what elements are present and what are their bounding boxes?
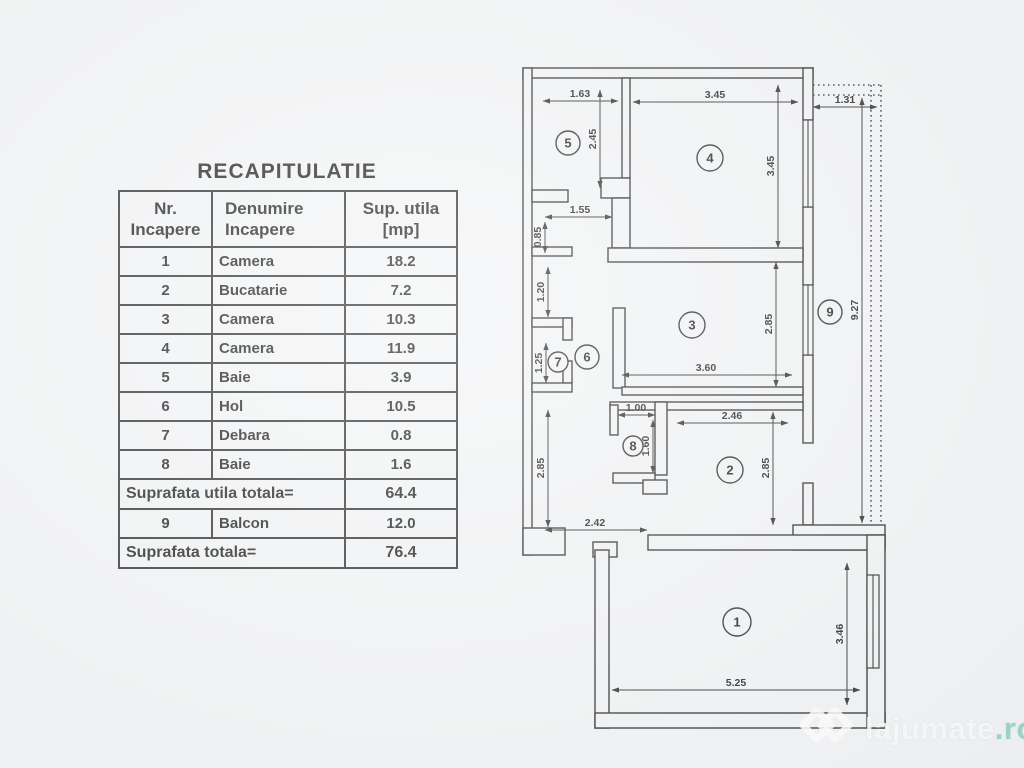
watermark-tld: .ro [995,711,1024,746]
wall [803,207,813,285]
room-number-9: 9 [818,300,842,324]
table-header-row: Nr. Incapere Denumire Incapere Sup. util… [119,191,457,247]
room-number-6: 6 [575,345,599,369]
header-denumire: Denumire Incapere [212,191,345,247]
wall [595,713,885,728]
wall [803,483,813,525]
table-row-balcon: 9 Balcon 12.0 [119,509,457,538]
room-number-3: 3 [679,312,705,338]
dim-room3-width: 3.60 [696,362,717,374]
header-suprafata: Sup. utila [mp] [345,191,457,247]
header-nr: Nr. Incapere [119,191,212,247]
room-number-2: 2 [717,457,743,483]
table-row: 4 Camera 11.9 [119,334,457,363]
dim-balcony-width: 1.31 [835,94,856,106]
page-title: RECAPITULATIE [118,160,456,184]
wall [523,68,813,78]
room-number-8: 8 [623,436,643,456]
wall [532,383,572,392]
table-row: 1 Camera 18.2 [119,247,457,276]
wall [622,387,803,395]
wall [803,355,813,443]
table-row: 7 Debara 0.8 [119,421,457,450]
dim-room2-height: 2.85 [760,458,772,479]
floor-plan: .w{fill:#f3f4f5;stroke:#2b2b2b;stroke-wi… [510,50,900,750]
wall [523,528,565,555]
scanned-floorplan-document: RECAPITULATIE Nr. Incapere Denumire Inca… [0,0,1024,768]
svg-text:7: 7 [554,355,561,370]
wall [532,247,572,256]
wall [563,318,572,340]
room-number-1: 1 [723,608,751,636]
dim-room4-width: 3.45 [705,89,726,101]
wall [523,68,532,555]
window-room3 [803,285,813,355]
dim-seg-085: 0.85 [532,227,544,248]
dim-room1-width: 5.25 [726,677,747,689]
dim-room8-width: 1.00 [626,402,647,414]
dim-seg-125: 1.25 [533,353,545,374]
room-numbers: 5 4 3 6 7 8 2 [548,131,842,636]
wall [610,405,618,435]
table-row: 6 Hol 10.5 [119,392,457,421]
svg-text:6: 6 [583,350,590,365]
svg-text:2: 2 [726,463,733,478]
table-row: 2 Bucatarie 7.2 [119,276,457,305]
room-number-7: 7 [548,352,568,372]
subtotal-row: Suprafata utila totala= 64.4 [119,479,457,509]
dim-balcony-length: 9.27 [849,300,861,321]
wall [595,550,609,728]
dim-hall-width: 2.42 [585,517,606,529]
dim-room1-height: 3.46 [834,624,846,645]
table-row: 8 Baie 1.6 [119,450,457,479]
svg-text:1: 1 [733,615,740,630]
window-room1 [867,575,879,668]
wall [655,402,667,475]
svg-text:3: 3 [688,318,695,333]
dim-hall-height: 2.85 [535,458,547,479]
wall [803,68,813,120]
wall [608,248,803,262]
wall [532,190,568,202]
svg-text:4: 4 [706,151,714,166]
dim-room3-height: 2.85 [763,314,775,335]
recap-table: Nr. Incapere Denumire Incapere Sup. util… [118,190,458,569]
table-row: 3 Camera 10.3 [119,305,457,334]
dim-room5-height: 2.45 [587,129,599,150]
table-row: 5 Baie 3.9 [119,363,457,392]
room-number-5: 5 [556,131,580,155]
floor-plan-drawing: .w{fill:#f3f4f5;stroke:#2b2b2b;stroke-wi… [510,50,900,750]
svg-text:8: 8 [629,439,636,454]
total-row: Suprafata totala= 76.4 [119,538,457,568]
svg-text:9: 9 [826,305,833,320]
dim-seg-120: 1.20 [535,282,547,303]
wall [643,480,667,494]
wall [648,535,885,550]
wall [622,78,630,178]
dim-room2-width: 2.46 [722,410,743,422]
wall [601,178,630,198]
room-number-4: 4 [697,145,723,171]
dim-room5-width: 1.63 [570,88,591,100]
svg-text:5: 5 [564,136,571,151]
dim-passage-155: 1.55 [570,204,591,216]
dim-room4-height: 3.45 [765,156,777,177]
wall [612,198,630,248]
wall [613,308,625,388]
window-room4 [803,120,813,207]
